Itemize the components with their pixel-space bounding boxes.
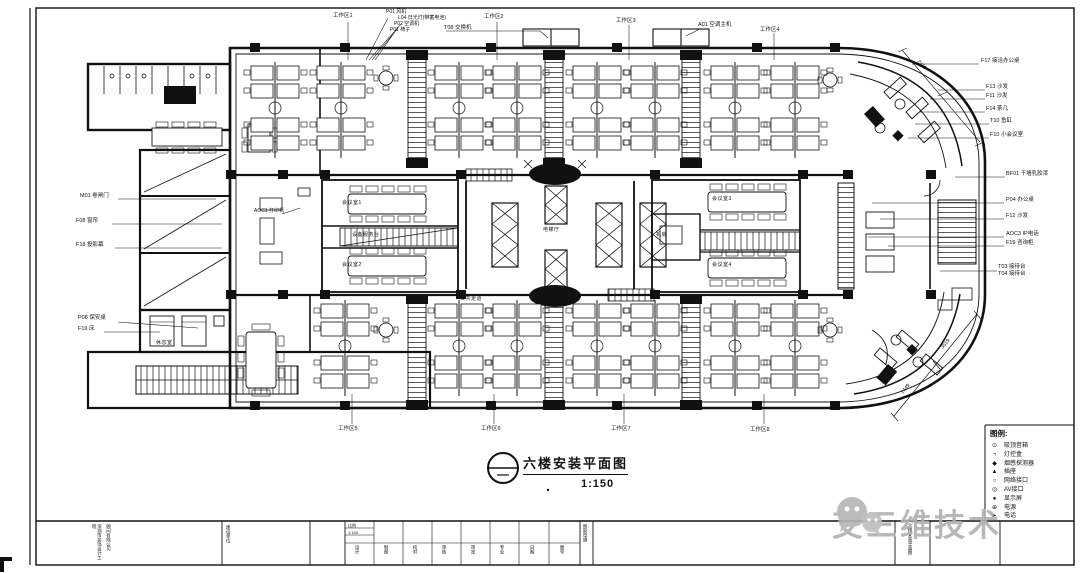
titleblock-signoff-review: 审核	[442, 545, 447, 554]
titleblock-owner: 建设单位	[226, 525, 231, 543]
legend-label: 电话	[1004, 512, 1016, 521]
room-corridor: 公共走道	[460, 297, 482, 302]
legend-label: 吸顶音箱	[1004, 442, 1028, 451]
callout-aoc1-printer: AOC1 打印机	[254, 209, 284, 214]
callout-f13-sofa: F13 沙发	[986, 85, 1008, 91]
titleblock-signoff-approve: 审定	[471, 545, 476, 554]
callout-p01-chair: P01 椅子	[390, 28, 410, 33]
callout-f18-screen: F18 投影幕	[76, 243, 104, 249]
callout-f12-sofa: F12 沙发	[1006, 214, 1028, 220]
company-name-line2: 顾问有限公司	[106, 524, 111, 564]
room-elevator-hall: 电梯厅	[543, 228, 560, 233]
callout-f14-teatable: F14 茶几	[986, 107, 1008, 113]
legend: 图例: ⊙吸顶音箱 ¬灯控盒 ◆烟感探测器 ▲插座 ○网络接口 ◎AV接口 ●显…	[990, 428, 1072, 521]
callout-workzone-7: 工作区7	[611, 427, 631, 433]
drawing-title: 六楼安装平面图 1:150	[523, 453, 628, 490]
room-machine: 机房	[656, 233, 667, 238]
legend-symbol: ¬	[990, 451, 999, 460]
callout-f11-sofa: F11 沙发	[986, 94, 1008, 100]
callout-t08-switch: T08 交换机	[444, 26, 472, 32]
legend-symbol: ⊙	[990, 442, 999, 451]
legend-item: ●显示屏	[990, 495, 1072, 504]
callout-t03-reception: T03 接待台	[998, 265, 1026, 271]
titleblock-signoff-design: 设计	[355, 545, 360, 554]
legend-title: 图例:	[990, 428, 1072, 439]
callout-p04-desk: P04 办公桌	[1006, 198, 1034, 204]
room-meeting-1: 会议室1	[342, 201, 362, 206]
titleblock-scale-label: 比例	[348, 523, 356, 529]
callout-f10-meeting: F10 小会议室	[990, 133, 1023, 139]
callout-aoc3-phone: AOC3 IP电话	[1006, 232, 1039, 238]
callout-bf01-finish: BF01 干墙乳胶漆	[1006, 172, 1048, 178]
legend-item: ○网络接口	[990, 477, 1072, 486]
callout-t04-reception: T04 接待台	[998, 272, 1026, 278]
titleblock-signoff-no: 图号	[560, 545, 565, 554]
titleblock-company: 深圳市装饰设计工程 顾问有限公司	[92, 524, 112, 564]
watermark: 艾三维技术	[832, 492, 1002, 558]
legend-label: 烟感探测器	[1004, 460, 1034, 469]
legend-label: AV接口	[1004, 486, 1024, 495]
callout-f17-desk: F17 接洽办公桌	[981, 59, 1020, 65]
legend-symbol: ▲	[990, 468, 999, 477]
callout-workzone-5: 工作区5	[338, 427, 358, 433]
legend-item: ⊕电源	[990, 504, 1072, 513]
titleblock-signoff-check: 校对	[413, 545, 418, 554]
callout-m01-rolldoor: M01 卷闸门	[80, 194, 109, 200]
callout-t10-tank: T10 鱼缸	[990, 119, 1012, 125]
legend-label: 显示屏	[1004, 495, 1022, 504]
legend-symbol: ◆	[990, 460, 999, 469]
legend-label: 插座	[1004, 468, 1016, 477]
callout-workzone-2: 工作区2	[484, 15, 504, 21]
legend-label: 灯控盒	[1004, 451, 1022, 460]
room-meeting-2: 会议室2	[342, 263, 362, 268]
room-meeting-3: 会议室3	[712, 197, 732, 202]
callout-f19-cabinet: F19 咨询柜	[1006, 241, 1034, 247]
callout-workzone-6: 工作区6	[481, 427, 501, 433]
callout-p08-guard-desk: P08 保安桌	[78, 316, 106, 322]
room-service-counter: 设备服务台	[352, 233, 380, 238]
wechat-icon	[832, 492, 888, 540]
drawing-scale: 1:150	[581, 478, 628, 490]
callout-workzone-8: 工作区8	[750, 428, 770, 434]
titleblock-scale-value: 1:150	[348, 530, 358, 535]
callout-workzone-4: 工作区4	[760, 28, 780, 34]
legend-item: ¬灯控盒	[990, 451, 1072, 460]
company-name-line1: 深圳市装饰设计工程	[92, 524, 102, 564]
titleblock-signoff-draw: 制图	[384, 545, 389, 554]
callout-f19-bed: F19 床	[78, 327, 95, 333]
callout-workzone-1: 工作区1	[333, 14, 353, 20]
titleblock-signoff-date: 日期	[530, 545, 535, 554]
drawing-sheet: 工作区1 P01 风机 L04 日光灯(带蓄电池) P02 空调机 P01 椅子…	[0, 0, 1080, 573]
legend-label: 电源	[1004, 504, 1016, 513]
drawing-title-text: 六楼安装平面图	[523, 453, 628, 475]
legend-item: ◆烟感探测器	[990, 460, 1072, 469]
titleblock-signoff-discipline: 专业	[500, 545, 505, 554]
callout-f08-curtain: F08 窗帘	[76, 219, 98, 225]
room-rest: 休息室	[156, 341, 173, 346]
legend-symbol: ○	[990, 477, 999, 486]
legend-item: ▲插座	[990, 468, 1072, 477]
legend-item: ⊙吸顶音箱	[990, 442, 1072, 451]
legend-item: ►电话	[990, 512, 1072, 521]
callout-workzone-3: 工作区3	[616, 19, 636, 25]
titleblock-sheet-class: 图别电施	[583, 524, 588, 542]
callout-a01-ac-main: A01 空调主机	[698, 23, 731, 29]
legend-item: ◎AV接口	[990, 486, 1072, 495]
room-meeting-4: 会议室4	[712, 263, 732, 268]
legend-label: 网络接口	[1004, 477, 1028, 486]
